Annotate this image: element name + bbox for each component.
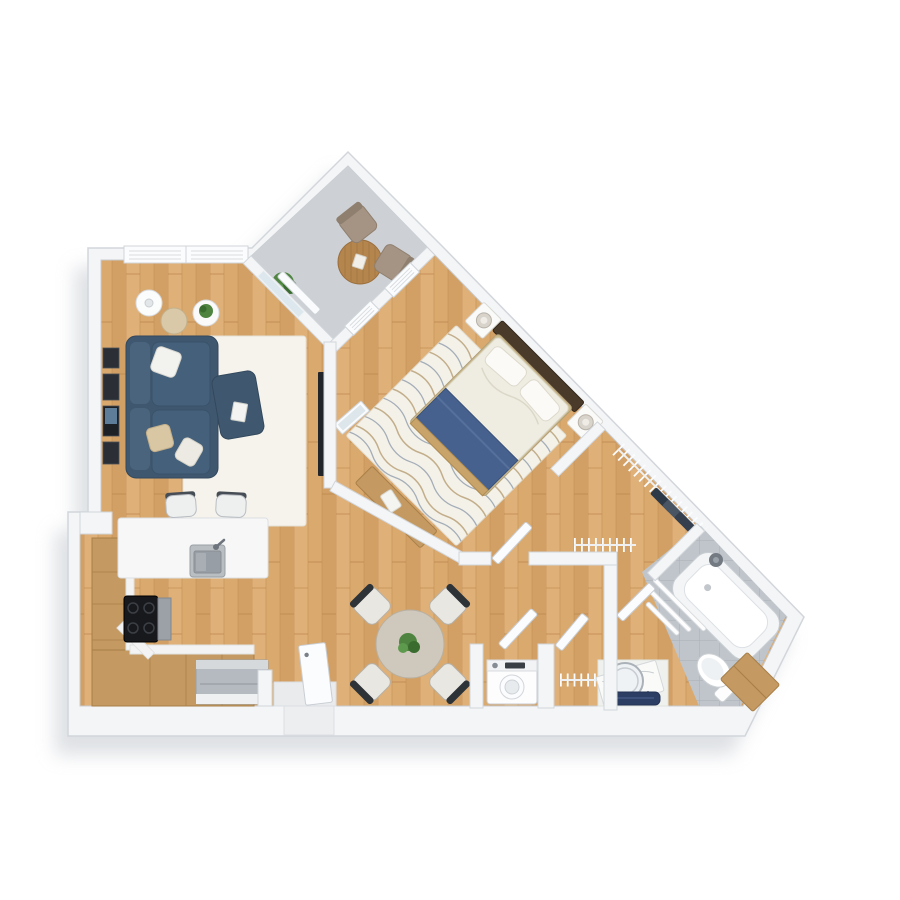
wall-niche-left: [470, 644, 483, 708]
gallery-frames: [103, 348, 119, 464]
wall-hall-a: [459, 552, 491, 565]
side-table-white: [193, 300, 219, 326]
oven-front: [158, 598, 171, 640]
side-table-tan: [161, 308, 187, 334]
book: [231, 402, 248, 422]
dishwasher: [196, 660, 268, 704]
wall-bathroom-west: [604, 565, 617, 710]
floor-lamp: [136, 290, 162, 316]
floor-plan-svg: 3D top-down floor plan render – one-bedr…: [0, 0, 900, 900]
wall-entry-stub: [258, 670, 272, 706]
living-window: [124, 246, 248, 263]
washing-machine: [487, 660, 537, 704]
wall-living-east: [324, 342, 336, 488]
bar-stool-1: [165, 491, 197, 518]
sofa: [126, 336, 218, 478]
wall-kitchen-step: [80, 512, 112, 534]
wall-niche-mid: [538, 644, 554, 708]
floor-plan-image: 3D top-down floor plan render – one-bedr…: [0, 0, 900, 900]
entry-threshold: [284, 704, 334, 735]
cooktop-oven: [124, 596, 171, 642]
wall-hall-b: [529, 552, 617, 565]
kitchen-sink: [190, 540, 225, 577]
bar-stool-2: [215, 491, 246, 518]
